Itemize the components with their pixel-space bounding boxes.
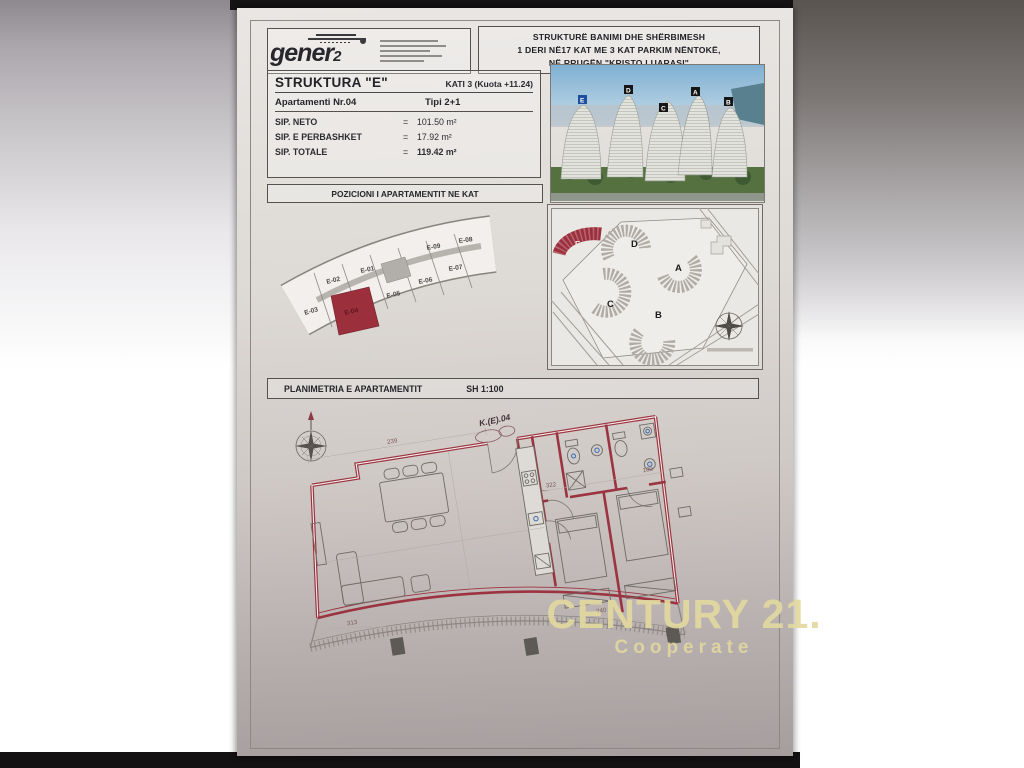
sip-neto-row: SIP. NETO = 101.50 m² [275,117,533,127]
aerial-render-image: E D C A B [550,64,765,203]
logo-sub: 2 [333,48,340,65]
ac-unit [678,506,691,517]
sip-perbashket-value: 17.92 m² [417,132,452,142]
plan-section-title: PLANIMETRIA E APARTAMENTIT SH 1:100 [267,378,759,399]
sip-totale-row: SIP. TOTALE = 119.42 m² [275,147,533,157]
sip-neto-label: SIP. NETO [275,117,403,127]
gener2-logo: gener2 [268,31,372,71]
bed-1 [616,489,668,561]
project-title-line1: STRUKTURË BANIMI DHE SHËRBIMESH [479,31,759,44]
apartment-type: Tipi 2+1 [425,97,460,108]
sip-perbashket-label: SIP. E PERBASHKET [275,132,403,142]
project-title-line2: 1 DERI NË17 KAT ME 3 KAT PARKIM NËNTOKË, [479,44,759,57]
sip-totale-eq: = [403,147,417,157]
apartment-info-box: STRUKTURA "E" KATI 3 (Kuota +11.24) Apar… [267,70,541,178]
balcony-columns [390,594,681,687]
plan-scale-text: SH 1:100 [466,384,503,394]
render-label-e: E [580,98,585,105]
dim-239: 239 [387,437,399,446]
washing-machine [640,423,656,439]
logo-box: gener2 [267,28,471,74]
apartment-number: Apartamenti Nr.04 [275,97,425,108]
ac-unit [670,467,683,478]
render-foreground [551,193,764,201]
sip-totale-value: 119.42 m² [417,147,457,157]
sip-neto-value: 101.50 m² [417,117,457,127]
dim-100: 100 [642,466,654,475]
bath-sink [591,444,604,457]
render-label-c: C [661,106,666,113]
sip-totale-label: SIP. TOTALE [275,147,403,157]
render-label-d: D [626,88,631,95]
site-plan-box: E D A C B [547,204,763,370]
furniture [304,419,703,645]
background-right-shade [793,0,1024,340]
dim-240: 240 [596,607,608,616]
balcony-window-wall [317,559,678,660]
logo-text: gener [270,39,333,67]
struktura-label: STRUKTURA "E" [275,75,388,90]
siteplan-label-d: D [631,239,638,250]
kati-label: KATI 3 (Kuota +11.24) [446,79,533,89]
toilet-2 [614,440,628,458]
photo-of-plan-sheet: gener2 STRUKTURË BANIMI DHE SHËRBIMESH 1… [0,0,1024,768]
dimension-lines [302,401,680,636]
paper-sheet: gener2 STRUKTURË BANIMI DHE SHËRBIMESH 1… [237,8,793,756]
position-section-title: POZICIONI I APARTAMENTIT NE KAT [267,184,543,203]
apartment-floor-plan: 239 322 100 313 240 K.(E).04 [265,400,761,744]
bed-2 [555,513,606,583]
plan-title-text: PLANIMETRIA E APARTAMENTIT [284,384,422,394]
siteplan-label-a: A [675,263,682,274]
plan-compass-icon [295,411,327,462]
dim-322: 322 [545,481,557,490]
siteplan-label-e: E [575,240,581,249]
dim-313: 313 [347,619,359,628]
siteplan-label-b: B [655,310,662,321]
door-swings [488,419,656,550]
sip-perbashket-row: SIP. E PERBASHKET = 17.92 m² [275,132,533,142]
sip-neto-eq: = [403,117,417,127]
toilet [566,447,580,465]
sofa [336,551,364,605]
armchair [410,574,430,593]
dining-table [379,473,448,523]
position-title-text: POZICIONI I APARTAMENTIT NE KAT [331,189,478,199]
unit-label: E-05 [386,290,401,300]
render-label-a: A [693,90,698,97]
floor-position-diagram: E-02 E-01 E-09 E-08 E-03 E-04 E-05 E-06 … [265,202,543,366]
sip-perbashket-eq: = [403,132,417,142]
render-label-b: B [726,100,731,107]
siteplan-caption-bar [707,348,753,352]
toilet-tank [565,439,578,447]
company-address-lines [380,40,446,62]
siteplan-label-c: C [607,299,614,310]
